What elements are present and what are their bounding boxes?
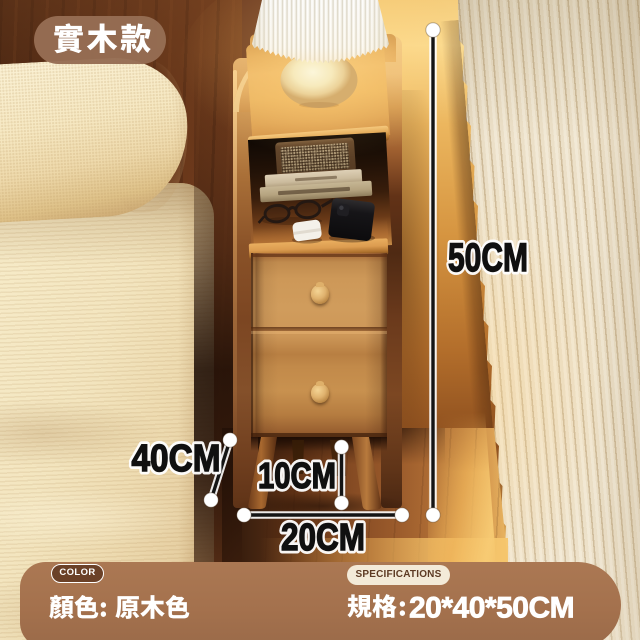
svg-text:20CM: 20CM	[281, 517, 365, 559]
svg-text:50CM: 50CM	[448, 236, 528, 280]
svg-text:20*40*50CM: 20*40*50CM	[409, 594, 574, 625]
svg-text:10CM: 10CM	[258, 455, 336, 496]
svg-text:40CM: 40CM	[132, 438, 221, 480]
